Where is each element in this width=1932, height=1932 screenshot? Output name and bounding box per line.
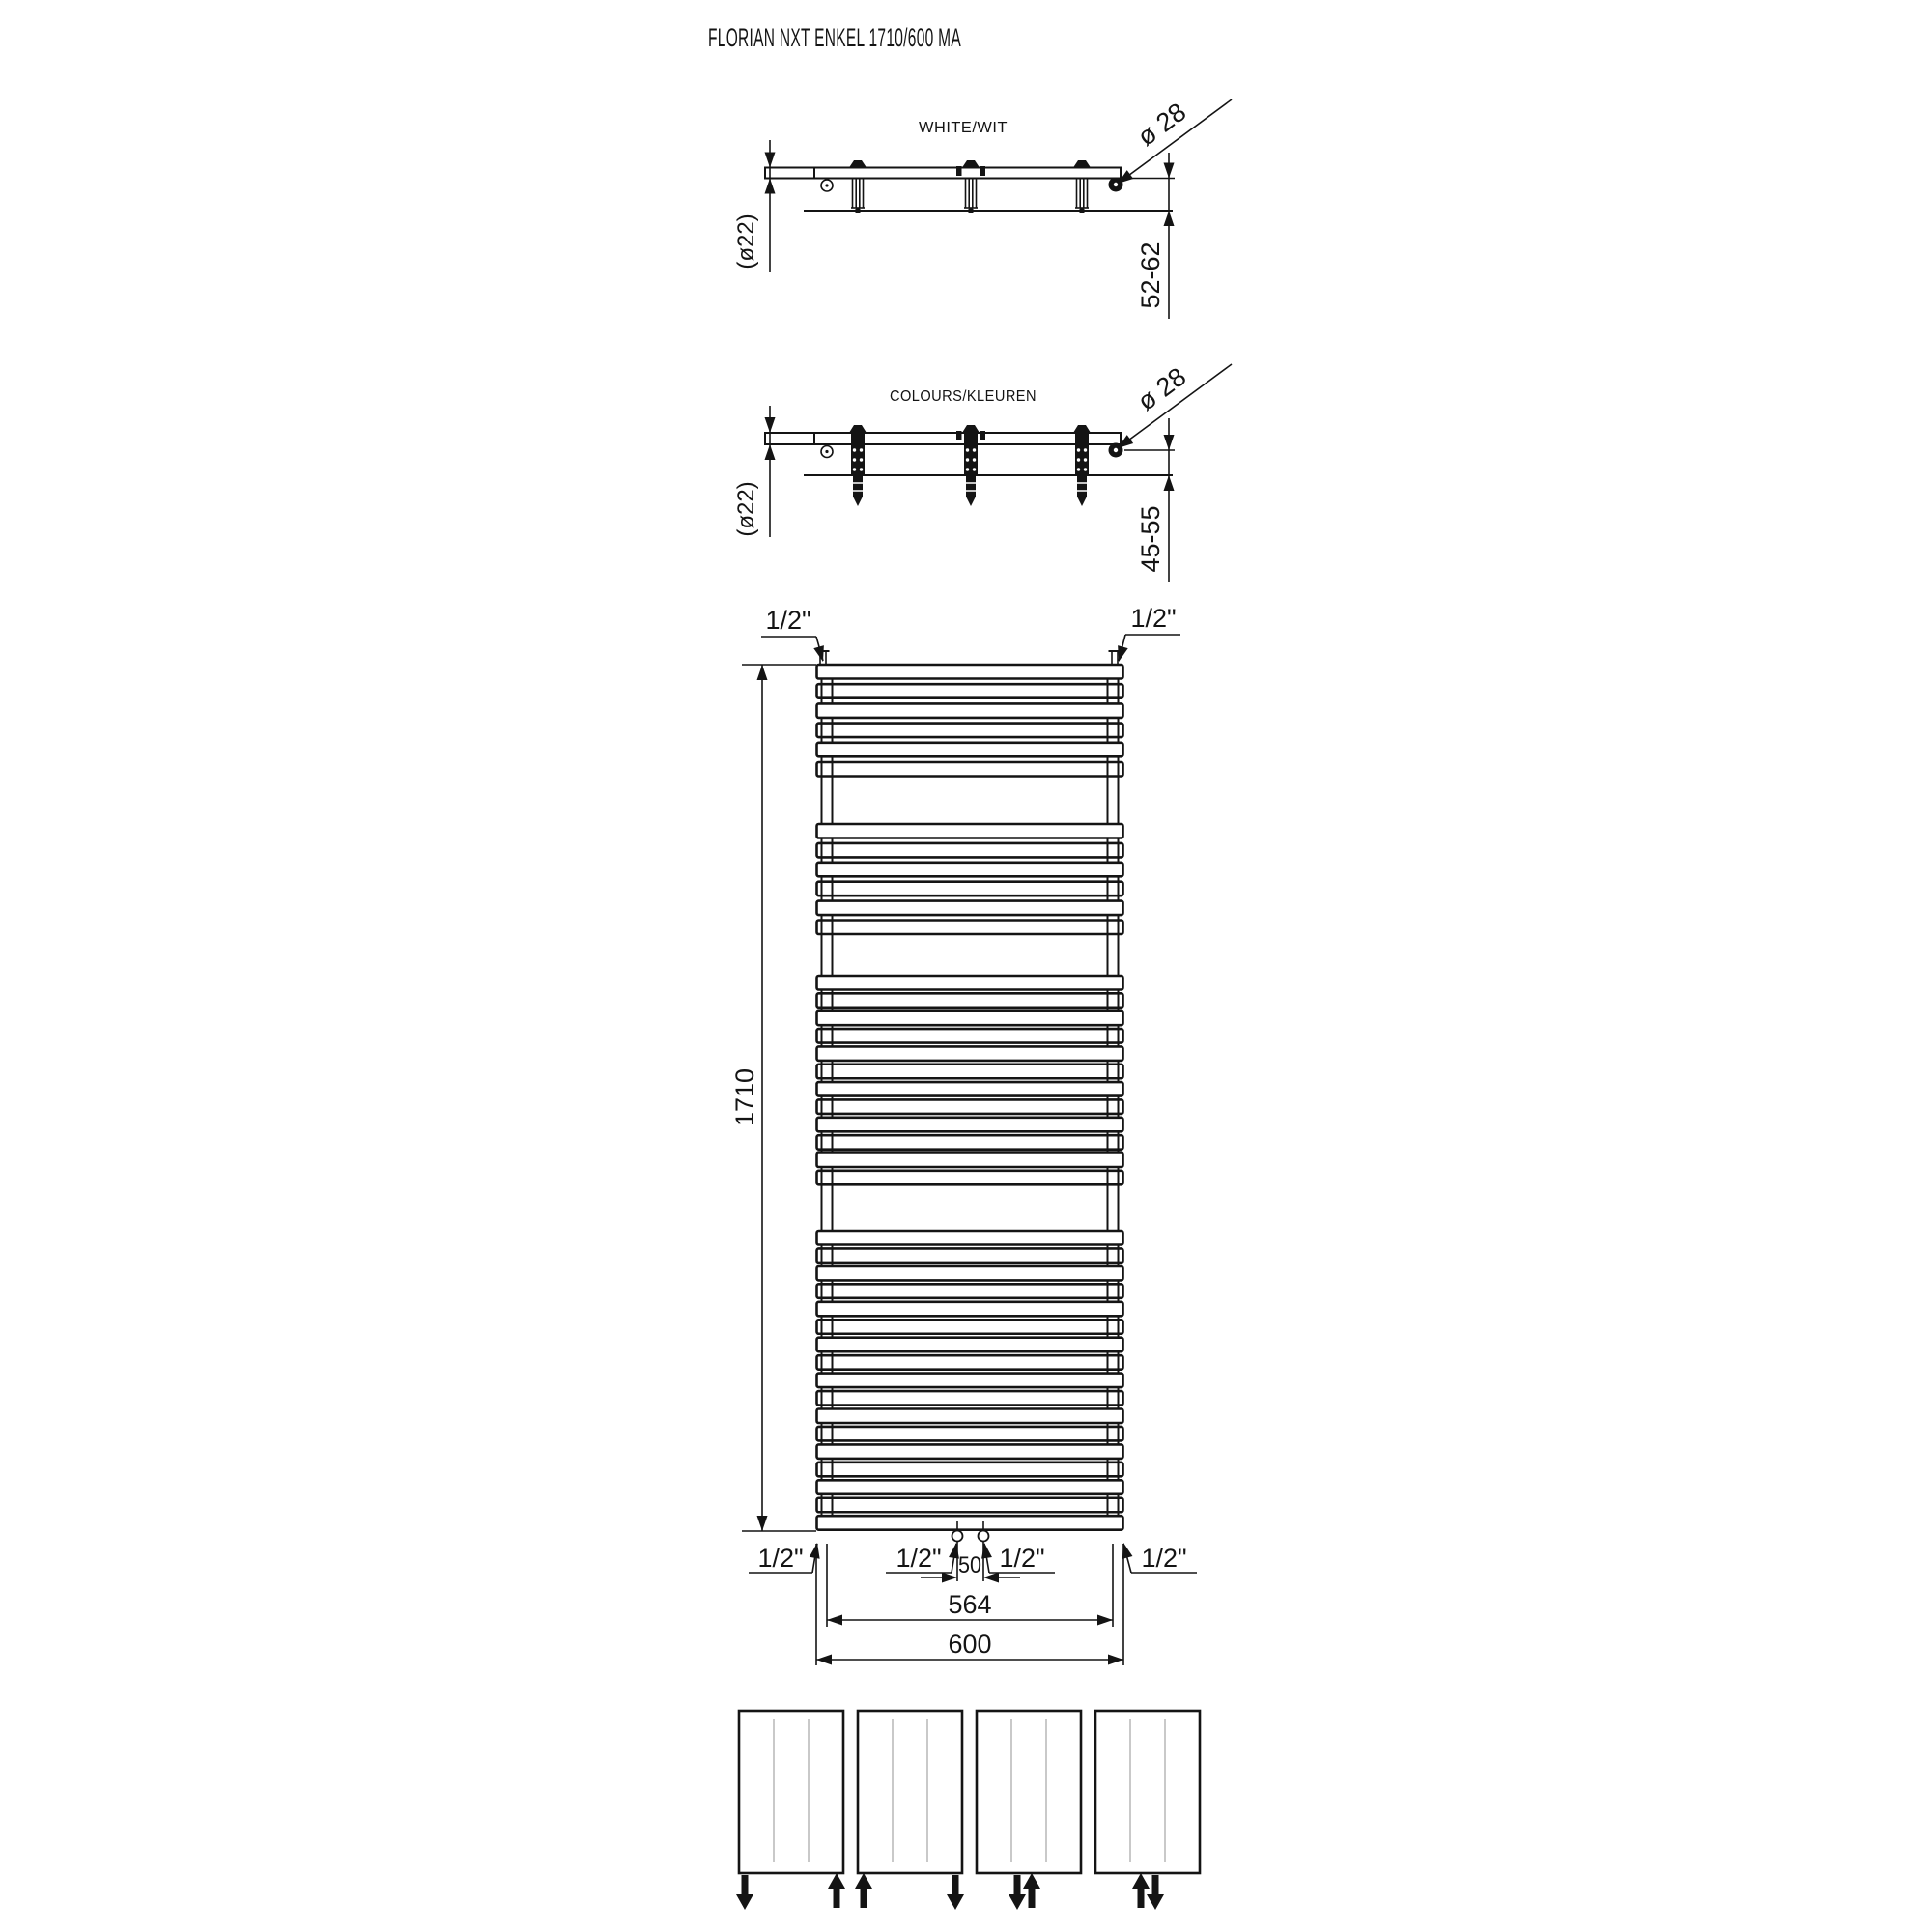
leader-bottom-center-left: 1/2" [886,1542,961,1573]
front-view: 1/2" 1/2" 1710 1/2" [730,604,1197,1665]
radiator-rung [817,703,1123,718]
dimension-wall-distance: 52-62 [1124,153,1175,319]
radiator-rung [817,743,1123,757]
flow-up-arrow-icon [828,1873,845,1908]
connection-size: 1/2" [765,606,810,635]
radiator-rung [817,1338,1123,1352]
radiator-rung [817,1444,1123,1459]
flow-down-arrow-icon [1147,1875,1164,1910]
radiator-rung [817,1427,1123,1441]
flow-up-arrow-icon [1023,1873,1040,1908]
radiator-rung [817,1065,1123,1079]
radiator-rung [817,1355,1123,1370]
radiator-rung [817,1391,1123,1406]
technical-drawing: FLORIAN NXT ENKEL 1710/600 MA WHITE/WIT … [0,0,1932,1932]
radiator-rung [817,1153,1123,1168]
collector-spacing-value: 564 [948,1590,991,1619]
connection-size: 1/2" [895,1544,941,1573]
flow-down-arrow-icon [947,1875,964,1910]
radiator-rung [817,1011,1123,1026]
radiator-rung [817,1029,1123,1043]
flow-up-arrow-icon [855,1873,872,1908]
connection-diagrams [736,1711,1200,1910]
connection-size: 1/2" [1141,1544,1186,1573]
wall-distance: 45-55 [1136,505,1165,572]
radiator-rung [817,1463,1123,1477]
connection-diagram-flow-center-up-down [1095,1711,1200,1910]
top-view-white: WHITE/WIT ø 28 (ø22) 52-62 [733,98,1232,319]
bracket-anchor-icon [849,425,867,506]
radiator-outline [739,1711,843,1873]
radiator-rung [817,1498,1123,1513]
leader-top-left: 1/2" [761,606,828,664]
center-spacing-value: 50 [958,1552,981,1578]
radiator-rung [817,1409,1123,1424]
radiator-rung [817,1171,1123,1185]
radiator-rung [817,824,1123,838]
radiator-rung [817,1082,1123,1096]
connection-size: 1/2" [1130,604,1176,633]
radiator-rung [817,1135,1123,1150]
connection-size: 1/2" [757,1544,803,1573]
bracket-tab [980,431,986,440]
leader-bottom-left: 1/2" [749,1542,822,1573]
height-value: 1710 [730,1068,759,1126]
radiator-rung [817,1099,1123,1114]
radiator-rung [817,1248,1123,1263]
flow-up-arrow-icon [1132,1873,1150,1908]
bracket-tab [956,166,962,176]
radiator-rung [817,1118,1123,1132]
connection-diagram-flow-left-up-right-down [855,1711,964,1910]
width-value: 600 [948,1630,991,1659]
rung-diameter: (ø22) [733,213,759,269]
radiator-rung [817,1320,1123,1334]
top-view-colours: COLOURS/KLEUREN ø 28 (ø22) 45-55 [733,362,1232,582]
radiator-rung [817,1266,1123,1281]
leader-bottom-right: 1/2" [1119,1542,1197,1573]
dimension-rung-diameter: (ø22) [733,140,776,272]
radiator-rung [817,762,1123,777]
view-label: COLOURS/KLEUREN [890,388,1037,405]
rung-top-view [765,168,1121,179]
radiator-rung [817,665,1123,679]
radiator-rung [817,863,1123,877]
leader-bottom-center-right: 1/2" [980,1542,1055,1573]
dimension-height: 1710 [730,665,816,1531]
radiator-outline [977,1711,1081,1873]
collector-diameter: ø 28 [1132,98,1191,152]
connection-diagram-flow-center-down-up [977,1711,1081,1910]
connection-size: 1/2" [999,1544,1044,1573]
drawing-title: FLORIAN NXT ENKEL 1710/600 MA [708,23,961,52]
radiator-rung [817,684,1123,698]
flow-down-arrow-icon [1009,1875,1026,1910]
radiator-rung [817,843,1123,858]
wall-distance: 52-62 [1136,241,1165,308]
radiator-rung [817,882,1123,896]
radiator-outline [1095,1711,1200,1873]
drawing-page: FLORIAN NXT ENKEL 1710/600 MA WHITE/WIT … [0,0,1932,1932]
bracket-tab [956,431,962,440]
radiator-outline [858,1711,962,1873]
bracket-anchor-icon [962,425,980,506]
radiator-rung [817,993,1123,1008]
flow-down-arrow-icon [736,1875,753,1910]
connection-diagram-flow-left-down-right-up [736,1711,845,1910]
rung-top-view [765,433,1121,444]
plug-dot [825,450,828,453]
radiator-rung [817,1302,1123,1317]
radiator-rung [817,1284,1123,1298]
plug-dot [825,184,828,186]
radiator-rung [817,1231,1123,1245]
radiator-rung [817,1516,1123,1530]
radiator-rung [817,901,1123,916]
rung-diameter: (ø22) [733,481,759,536]
collector-diameter: ø 28 [1132,362,1191,416]
radiator-rung [817,1480,1123,1494]
radiator-rung [817,1374,1123,1388]
bracket-tab [980,166,986,176]
dimension-rung-diameter: (ø22) [733,406,776,537]
radiator-rung [817,724,1123,738]
radiator-rung [817,921,1123,935]
leader-top-right: 1/2" [1114,604,1180,664]
radiator-rung [817,976,1123,990]
view-label: WHITE/WIT [919,120,1008,136]
bracket-anchor-icon [1073,425,1091,506]
radiator-rung [817,1046,1123,1061]
